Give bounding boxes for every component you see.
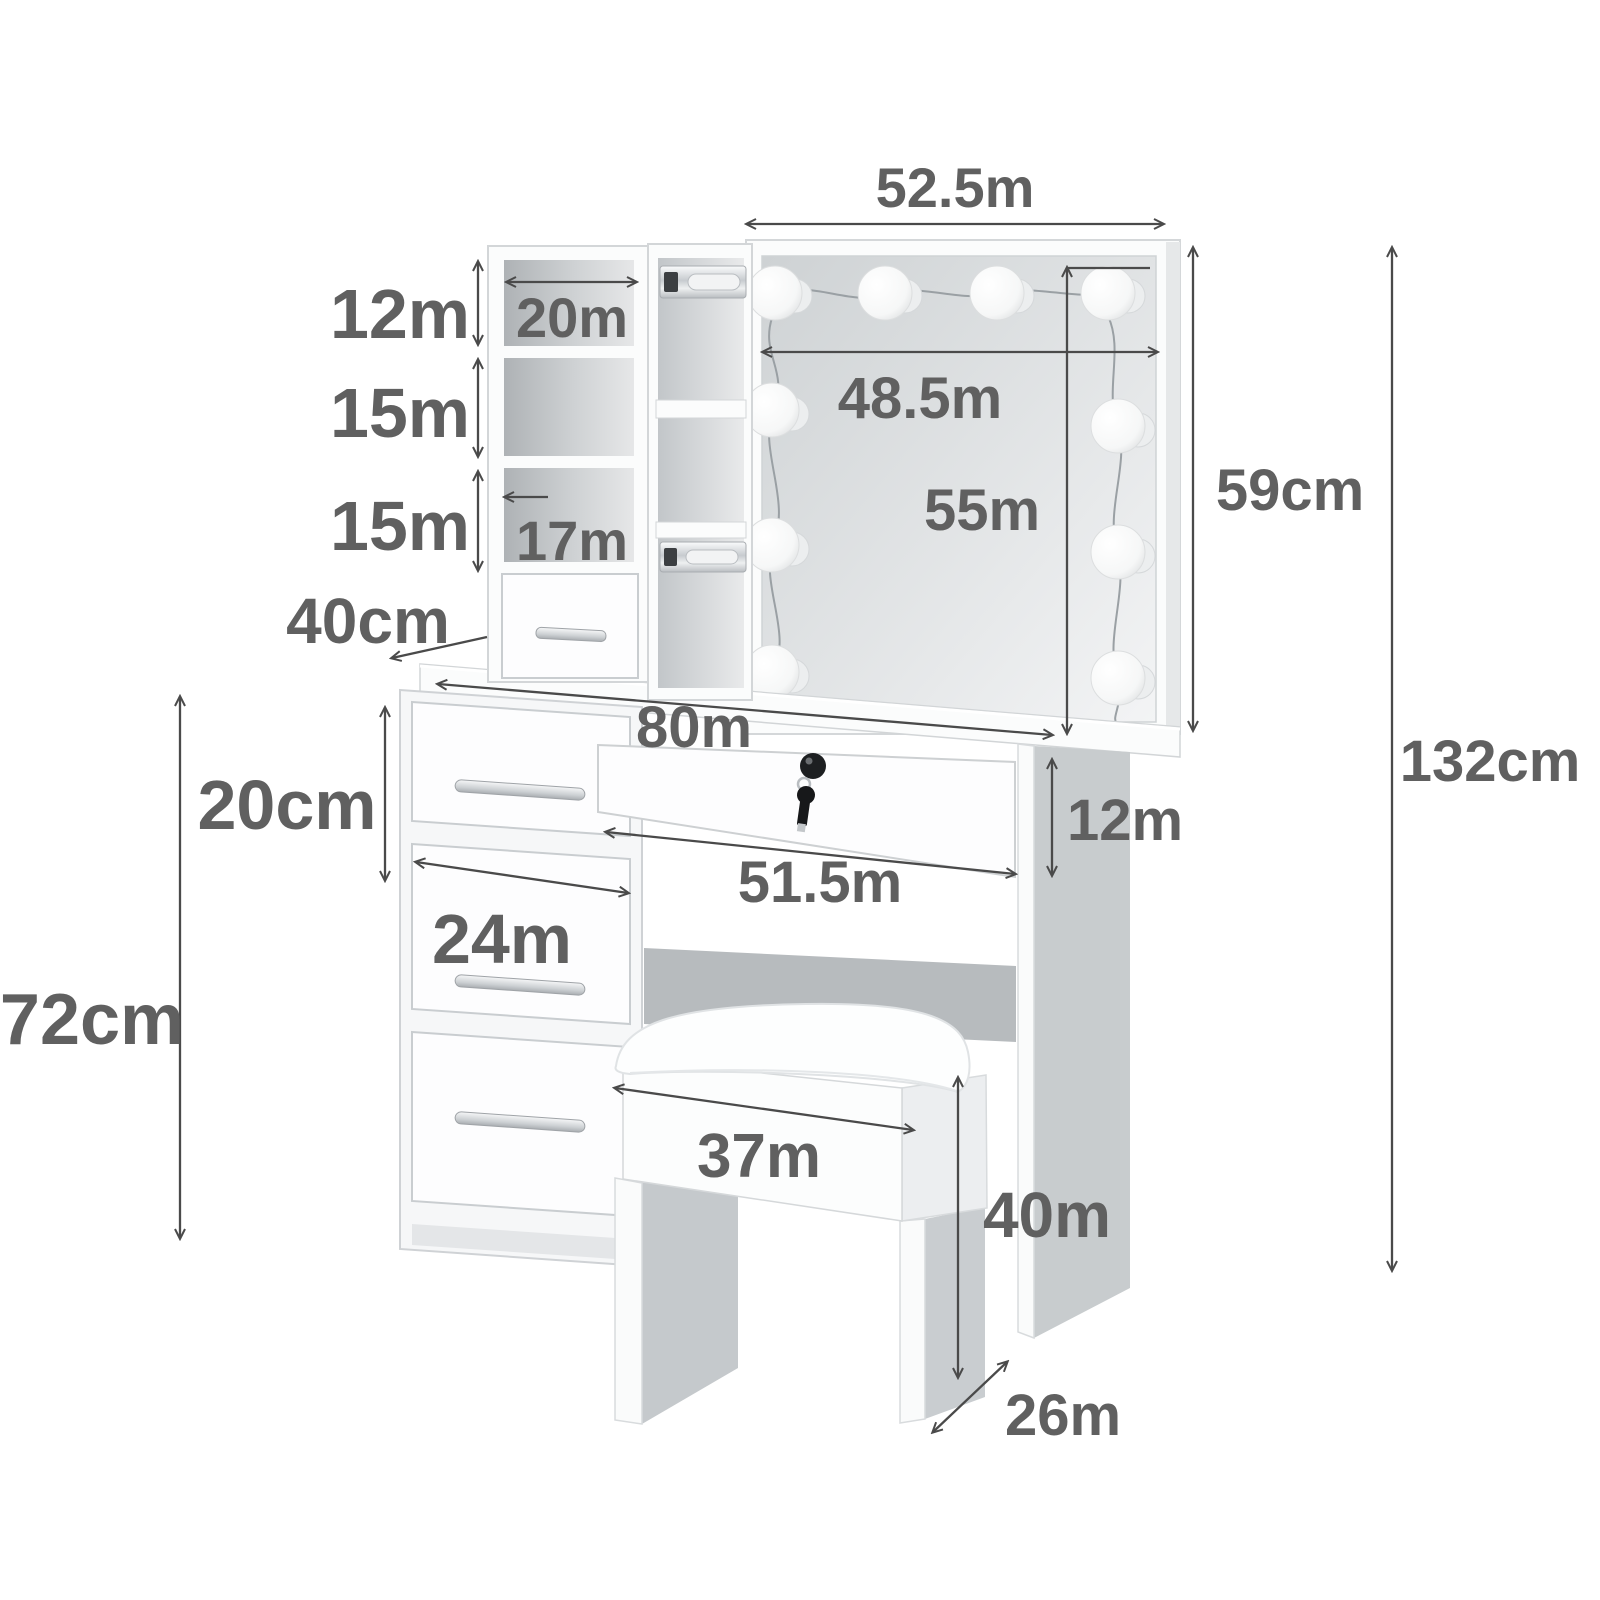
stool [615, 1004, 987, 1424]
vanity-dimension-diagram: 52.5m 12m 20m 15m 15m 17m 40cm 48.5m 55m… [0, 0, 1600, 1600]
bulb-icon [1091, 651, 1145, 705]
dim-label-overall-height: 132cm [1400, 729, 1581, 794]
hutch-middle-column [648, 244, 752, 700]
dim-label-mirror-height: 59cm [1216, 458, 1364, 523]
dim-label-top-cubby-height: 12m [330, 275, 470, 353]
bulb-icon [745, 383, 799, 437]
bulb-icon [1081, 266, 1135, 320]
dim-label-middle-cubby-height: 15m [330, 374, 470, 452]
stool-left-leg [615, 1178, 642, 1424]
dim-label-bottom-cubby-width: 17m [516, 509, 628, 572]
dim-label-bottom-cubby-height: 15m [330, 487, 470, 565]
bulb-icon [1091, 525, 1145, 579]
bulb-icon [745, 518, 799, 572]
dim-label-mirror-width: 52.5m [876, 156, 1035, 219]
dim-label-stool-depth: 26m [1005, 1383, 1121, 1448]
dim-label-glass-height: 55m [924, 478, 1040, 543]
dimension-diagram-page: 52.5m 12m 20m 15m 15m 17m 40cm 48.5m 55m… [0, 0, 1600, 1600]
stool-left-leg-side [642, 1162, 738, 1424]
drawer-slide-icon [660, 542, 746, 572]
bulb-icon [970, 266, 1024, 320]
dim-label-stool-height: 40m [983, 1179, 1111, 1251]
hutch-drawer [502, 574, 638, 678]
dim-label-tabletop-width: 80m [636, 695, 752, 760]
dim-label-center-drawer-width: 51.5m [738, 850, 902, 915]
middle-shelf [656, 522, 746, 538]
dim-label-side-drawer-width: 24m [432, 900, 572, 978]
dim-label-table-height: 72cm [0, 980, 184, 1060]
stool-right-leg [900, 1219, 925, 1423]
mirror-frame-edge [1166, 242, 1180, 732]
middle-column-interior [658, 258, 744, 688]
dim-label-hutch-drawer-depth: 40cm [286, 585, 450, 657]
dim-label-glass-width: 48.5m [838, 366, 1002, 431]
bulb-icon [1091, 399, 1145, 453]
stool-right-leg-side [925, 1207, 985, 1419]
drawer-slide-icon [660, 266, 746, 298]
shelf-cubby-middle [504, 358, 634, 456]
dim-label-side-drawer-height: 20cm [197, 766, 376, 844]
bulb-icon [748, 266, 802, 320]
middle-shelf [656, 400, 746, 418]
dim-label-center-drawer-height: 12m [1067, 788, 1183, 853]
stool-box-side [902, 1075, 987, 1221]
bulb-icon [858, 266, 912, 320]
dim-label-top-cubby-width: 20m [516, 286, 628, 349]
dim-label-stool-width: 37m [697, 1122, 821, 1191]
